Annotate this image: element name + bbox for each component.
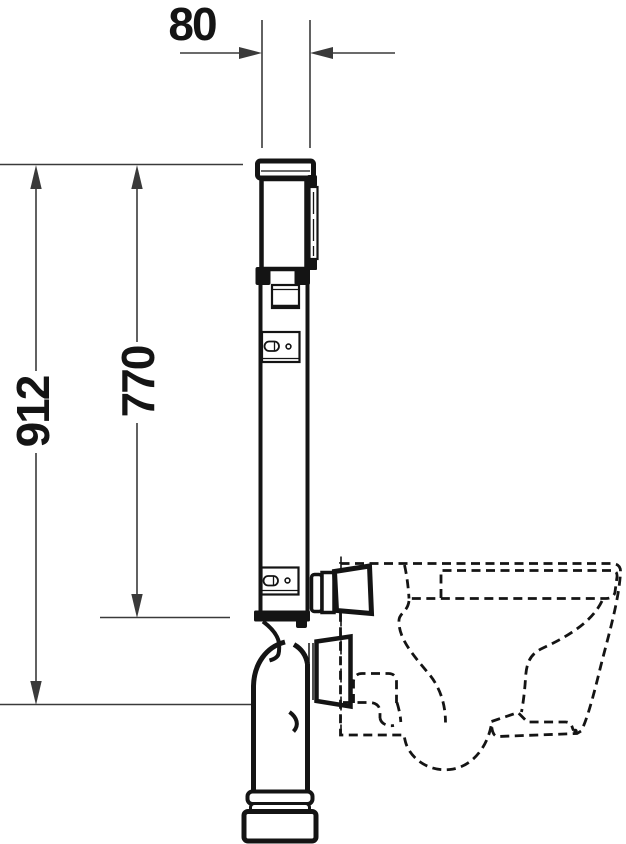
arrowhead-up-icon (30, 165, 41, 189)
arrowhead-left-icon (310, 47, 333, 59)
bracket-plate (262, 332, 300, 362)
flush-bend-hook (290, 712, 297, 732)
frame-foot-lug (296, 619, 307, 628)
bowl-foot-lines (492, 713, 574, 731)
toilet-bowl-outline (341, 564, 621, 770)
flush-pipe-connector (312, 566, 372, 614)
flush-pipe-taper (335, 566, 372, 614)
frame-corner-right (295, 267, 311, 285)
dimension-label-frame-height: 770 (112, 346, 164, 417)
outlet-spigot-outline (354, 674, 397, 704)
frame-top-cap (258, 161, 314, 178)
dimension-depth-80: 80 (168, 0, 395, 148)
elbow-inner-curve (294, 645, 308, 665)
flush-sleeve-body (322, 573, 334, 613)
bowl-inner-left-curve (399, 601, 446, 723)
lower-mounting-bracket (262, 568, 299, 595)
technical-drawing-wc-frame: 80 912 770 (0, 0, 626, 844)
rim-step-line (405, 565, 410, 599)
installation-frame (254, 161, 318, 732)
arrowhead-down-icon (30, 681, 41, 705)
foot-corner-dot (573, 729, 577, 733)
drain-connector (309, 637, 351, 707)
frame-corner-left (256, 267, 271, 285)
dimension-label-total-height: 912 (7, 376, 59, 447)
drain-pipe-taper (317, 637, 351, 707)
bowl-outer-outline (341, 564, 621, 770)
arrowhead-down-icon (131, 594, 142, 618)
dimension-frame-height-770: 770 (112, 165, 164, 618)
inspection-window (272, 285, 299, 308)
drain-elbow-pipe (244, 642, 316, 841)
rim-channel-outline (409, 571, 617, 599)
upper-mounting-bracket (262, 332, 300, 362)
socket-body (244, 812, 316, 842)
drawing-canvas: 80 912 770 (0, 0, 626, 844)
arrowhead-up-icon (131, 165, 142, 189)
cistern-body (262, 179, 307, 269)
bowl-inner-right-curve (522, 601, 603, 712)
arrowhead-right-icon (239, 47, 262, 59)
dimension-total-height-912: 912 (7, 165, 59, 705)
elbow-outer-edge (254, 642, 286, 792)
dimension-label-depth: 80 (168, 0, 216, 50)
